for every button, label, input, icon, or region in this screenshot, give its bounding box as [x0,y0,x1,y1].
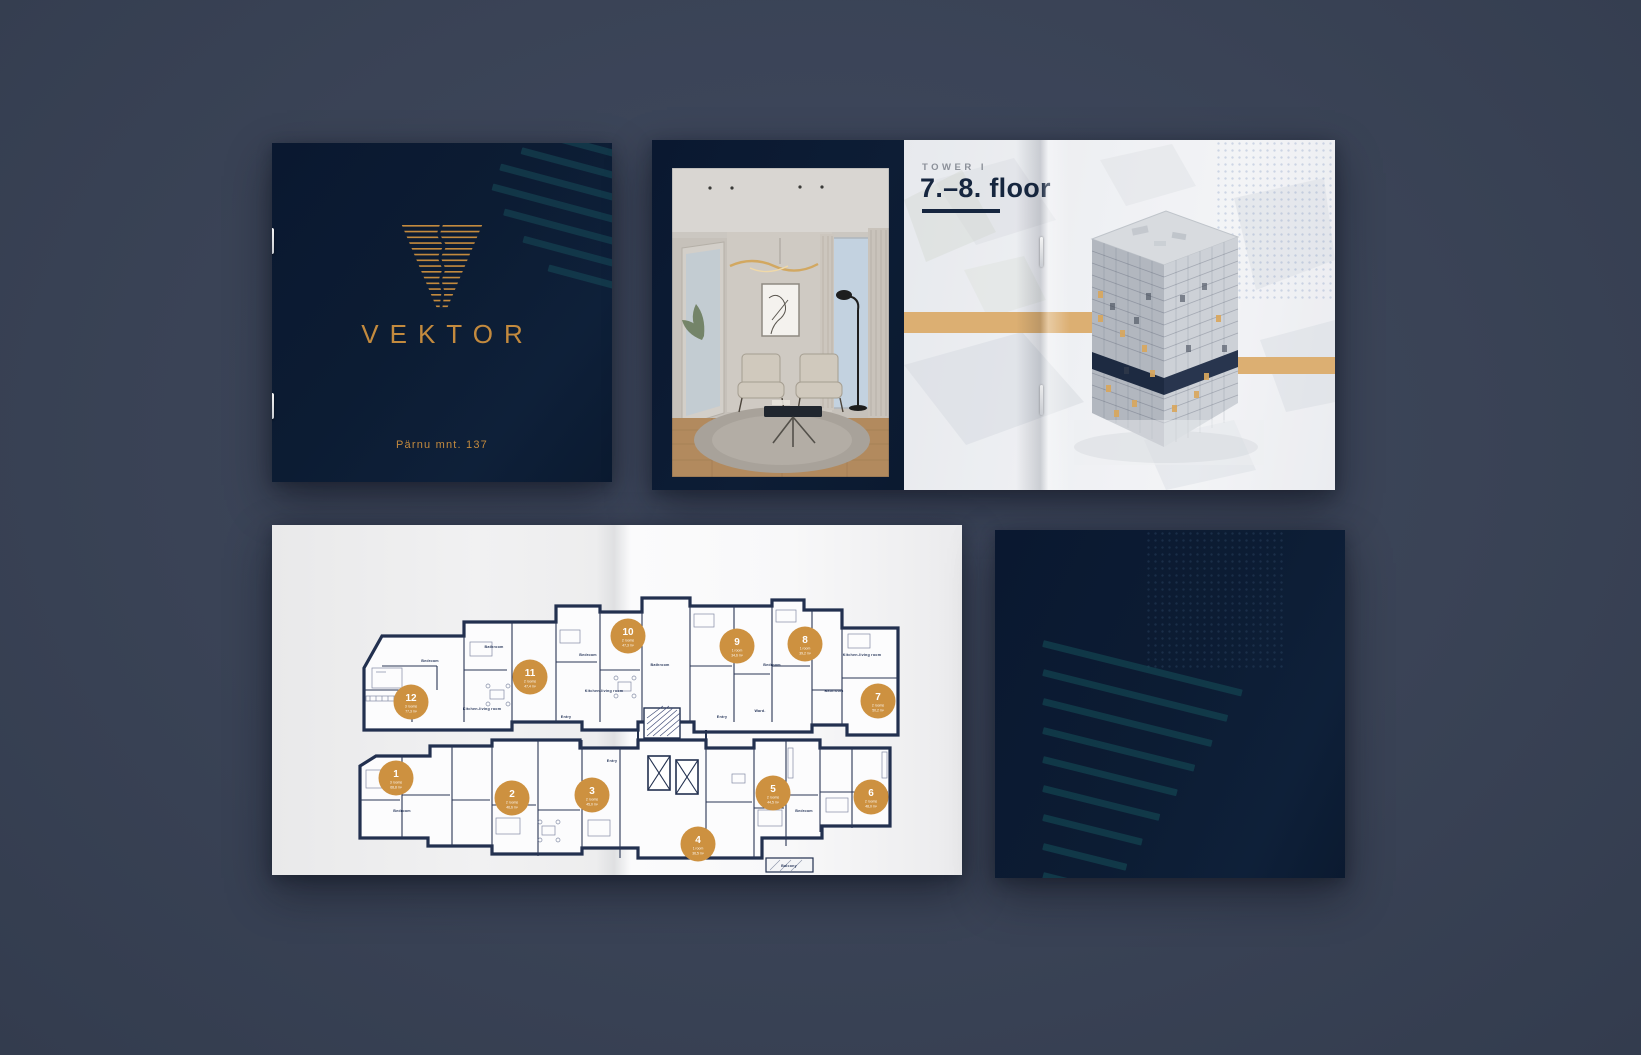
svg-text:47,3 m²: 47,3 m² [622,644,634,648]
svg-text:11: 11 [525,668,536,679]
svg-text:5: 5 [770,784,776,795]
room-label: Bathroom [824,689,844,693]
cover-address: Pärnu mnt. 137 [272,439,612,451]
apartment-badge-10: 10 2 rooms 47,3 m² [611,619,646,654]
room-label: Bathroom [484,645,504,649]
svg-text:3 rooms: 3 rooms [405,705,418,709]
spread-right-page: TOWER I 7.–8. floor [904,140,1335,490]
svg-text:1 room: 1 room [732,649,743,653]
stripe [1042,843,1127,871]
room-label: Kitchen-living room [843,653,882,657]
staple [1040,237,1043,267]
svg-text:2 rooms: 2 rooms [524,680,537,684]
room-label: Bedroom [795,809,813,813]
staple [272,393,274,419]
room-label: Bathroom [650,663,670,667]
svg-text:50,2 m²: 50,2 m² [872,709,884,713]
spread-left-page [652,140,904,490]
stripe [1042,785,1160,821]
stripe [1042,669,1228,722]
svg-text:1 room: 1 room [800,647,811,651]
svg-text:7: 7 [875,692,881,703]
svg-text:2 rooms: 2 rooms [767,796,780,800]
stripe [1042,814,1143,845]
stripe [549,143,612,158]
room-label: Entry [607,759,618,763]
tower-render [1054,195,1264,465]
svg-text:39,2 m²: 39,2 m² [799,652,811,656]
room-label: Bedroom [393,809,411,813]
svg-text:77,3 m²: 77,3 m² [405,710,417,714]
back-cover [995,530,1345,878]
svg-text:2 rooms: 2 rooms [586,798,599,802]
room-label: Bedroom [763,663,781,667]
svg-text:1: 1 [393,769,399,780]
interior-photo [672,168,889,477]
apartment-badge-1: 1 3 rooms 68,8 m² [379,761,414,796]
apartment-badge-8: 8 1 room 39,2 m² [788,627,823,662]
room-label: Entry [717,715,728,719]
svg-text:2 rooms: 2 rooms [872,704,885,708]
brand-wordmark: VEKTOR [272,319,612,350]
room-label: Ward. [754,709,765,713]
apartment-badge-7: 7 2 rooms 50,2 m² [861,684,896,719]
floor-spread: TOWER I 7.–8. floor [652,140,1335,490]
apartment-badge-6: 6 2 rooms 48,0 m² [854,780,889,815]
apartment-badge-12: 12 3 rooms 77,3 m² [394,685,429,720]
svg-text:47,4 m²: 47,4 m² [524,685,536,689]
room-label: Entry [561,715,572,719]
svg-text:2 rooms: 2 rooms [865,800,878,804]
brochure-mockup-scene: VEKTOR Pärnu mnt. 137 [0,0,1641,1055]
svg-text:34,6 m²: 34,6 m² [731,654,743,658]
room-label: Kitchen-living room [463,707,502,711]
room-label: Balcony [781,864,797,868]
svg-text:10: 10 [622,627,634,638]
svg-text:45,0 m²: 45,0 m² [586,803,598,807]
eyebrow-label: TOWER I [922,162,987,173]
svg-text:8: 8 [802,635,808,646]
vektor-logo-icon [394,221,490,313]
apartment-badge-11: 11 2 rooms 47,4 m² [513,660,548,695]
svg-text:36,5 m²: 36,5 m² [692,852,704,856]
room-label: Kitchen-living room [585,689,624,693]
apartment-badge-5: 5 2 rooms 44,5 m² [756,776,791,811]
floorplan-drawing: Bedroom Bathroom Kitchen-living room Ent… [342,570,902,875]
svg-text:2 rooms: 2 rooms [622,639,635,643]
svg-text:44,5 m²: 44,5 m² [767,801,779,805]
title-underline [922,209,1000,213]
svg-text:6: 6 [868,788,874,799]
svg-text:48,0 m²: 48,0 m² [865,805,877,809]
svg-text:2 rooms: 2 rooms [506,801,519,805]
svg-text:46,6 m²: 46,6 m² [506,806,518,810]
apartment-badge-2: 2 2 rooms 46,6 m² [495,781,530,816]
svg-text:12: 12 [405,693,417,704]
room-label: Bedroom [421,659,439,663]
floor-title: 7.–8. floor [920,173,1051,204]
svg-text:4: 4 [695,835,701,846]
svg-text:9: 9 [734,637,740,648]
stair-core [644,706,680,738]
svg-text:3: 3 [589,786,595,797]
svg-text:1 room: 1 room [693,847,704,851]
svg-text:68,8 m²: 68,8 m² [390,786,402,790]
svg-text:3 rooms: 3 rooms [390,781,403,785]
front-cover: VEKTOR Pärnu mnt. 137 [272,143,612,482]
apartment-badge-9: 9 1 room 34,6 m² [720,629,755,664]
room-label: Bedroom [579,653,597,657]
dot-texture [1145,530,1285,670]
floorplan-spread: Bedroom Bathroom Kitchen-living room Ent… [272,525,962,875]
apartment-badge-3: 3 2 rooms 45,0 m² [575,778,610,813]
staple [1040,385,1043,415]
svg-text:2: 2 [509,789,515,800]
apartment-badge-4: 4 1 room 36,5 m² [681,827,716,862]
stripe [1042,872,1112,878]
